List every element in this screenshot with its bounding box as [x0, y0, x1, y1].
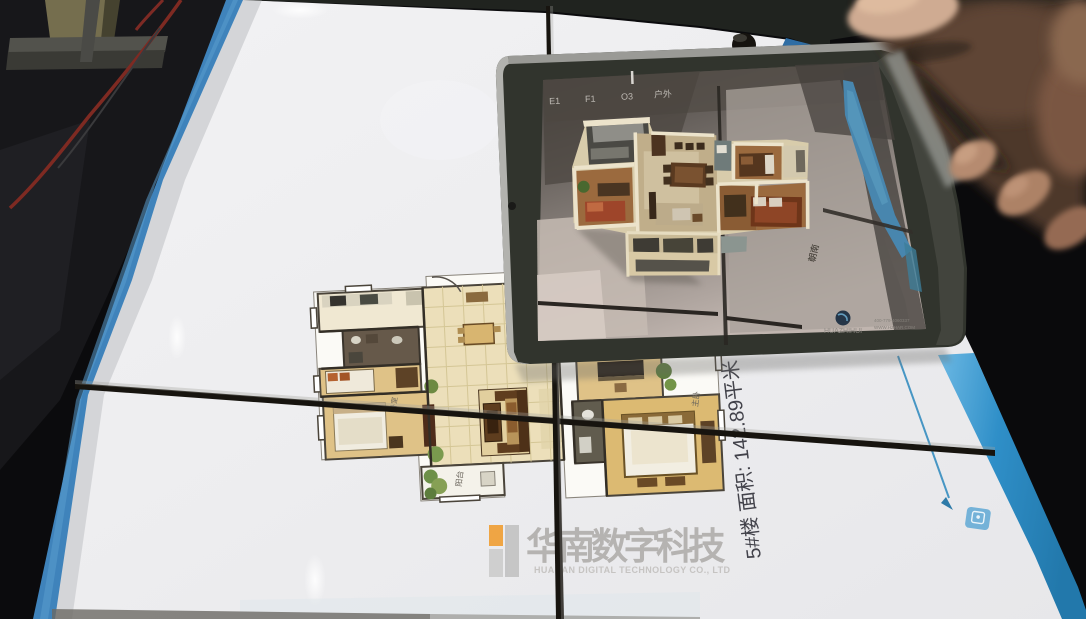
svg-text:WWW.HZHAR.COM: WWW.HZHAR.COM: [874, 325, 915, 330]
svg-text:户外: 户外: [654, 88, 672, 100]
svg-text:F1: F1: [585, 94, 596, 104]
svg-text:阳台: 阳台: [453, 470, 465, 487]
svg-text:HUAZHIHUI: HUAZHIHUI: [824, 328, 862, 335]
svg-text:E1: E1: [549, 96, 560, 106]
svg-text:O3: O3: [621, 91, 633, 101]
svg-text:主卧: 主卧: [690, 391, 702, 408]
svg-text:400-779-4060337: 400-779-4060337: [874, 318, 910, 323]
svg-text:HUANAN DIGITAL TECHNOLOGY CO.,: HUANAN DIGITAL TECHNOLOGY CO., LTD: [534, 565, 731, 575]
